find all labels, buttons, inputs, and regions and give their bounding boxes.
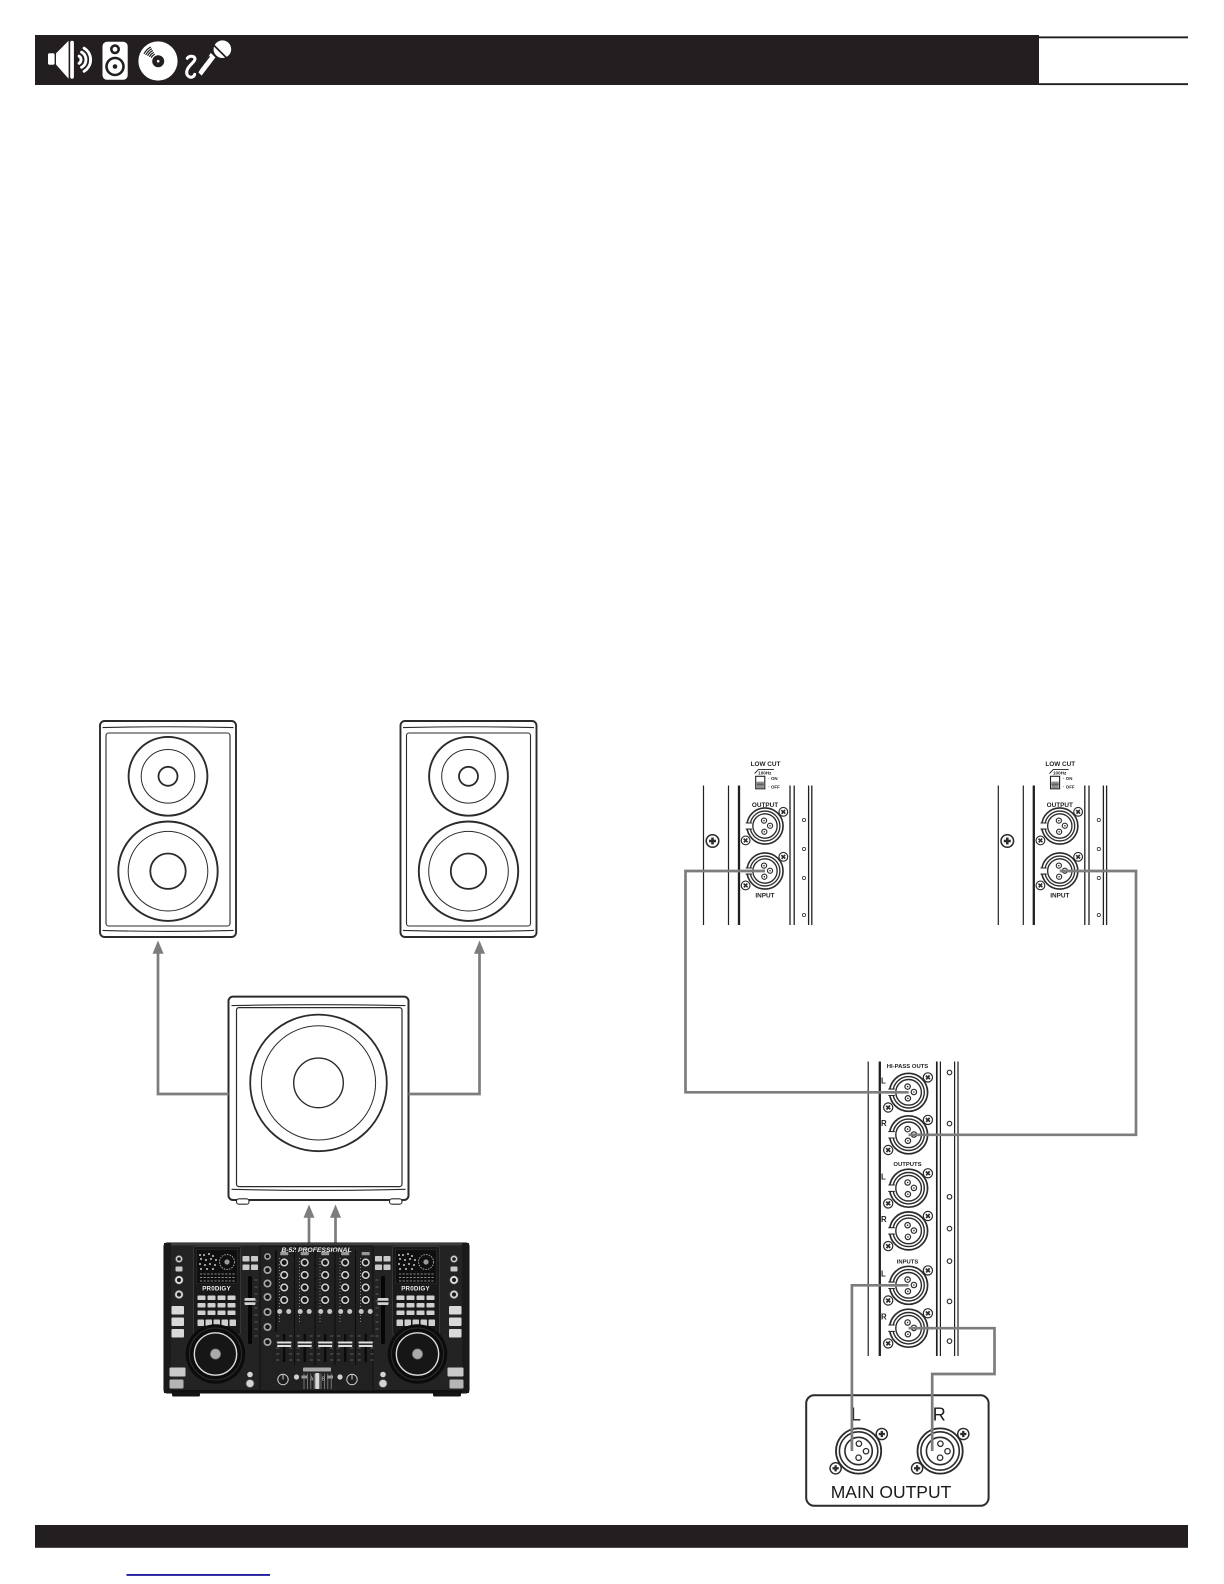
svg-text:MAIN OUTPUT: MAIN OUTPUT [831, 1482, 952, 1502]
svg-text:R: R [881, 1119, 887, 1128]
svg-text:PR0DIGY: PR0DIGY [202, 1286, 231, 1293]
svg-text:· ON: · ON [768, 776, 777, 781]
svg-text:L: L [881, 1077, 886, 1086]
svg-text:L: L [881, 1172, 886, 1181]
svg-text:LOW CUT: LOW CUT [751, 761, 781, 768]
svg-text:HI-PASS OUTS: HI-PASS OUTS [887, 1064, 929, 1070]
svg-text:B-52 PROFESSIONAL: B-52 PROFESSIONAL [281, 1247, 351, 1254]
svg-text:OUTPUTS: OUTPUTS [893, 1162, 921, 1168]
svg-text:INPUTS: INPUTS [897, 1260, 919, 1266]
svg-text:100Hz: 100Hz [758, 770, 772, 775]
svg-text:PR0DIGY: PR0DIGY [401, 1286, 430, 1293]
svg-text:R: R [881, 1215, 887, 1224]
svg-text:R: R [933, 1405, 946, 1425]
svg-text:INPUT: INPUT [755, 893, 774, 900]
svg-text:R: R [881, 1312, 887, 1321]
svg-text:L: L [881, 1270, 886, 1279]
svg-text:· OFF: · OFF [768, 784, 780, 789]
